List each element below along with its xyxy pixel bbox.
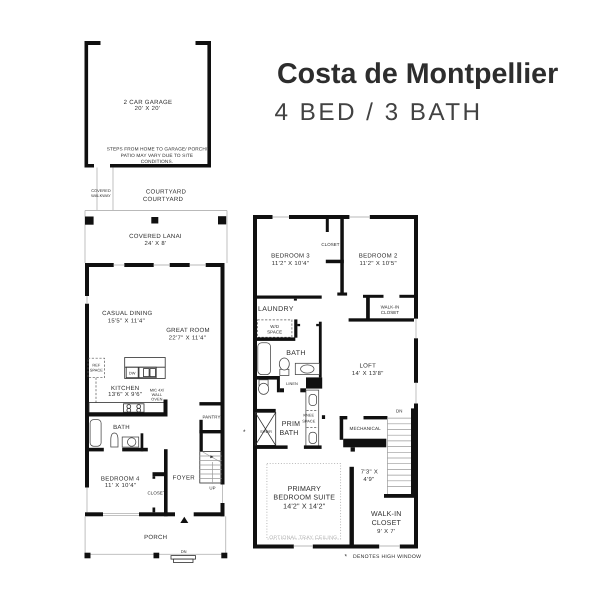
svg-text:SPACE: SPACE [90, 368, 104, 373]
svg-text:11'2" X 10'4": 11'2" X 10'4" [272, 260, 309, 267]
svg-text:BATH: BATH [113, 424, 130, 431]
svg-text:4'9": 4'9" [363, 476, 374, 483]
svg-text:SHWR: SHWR [260, 429, 272, 434]
svg-text:4 BED / 3 BATH: 4 BED / 3 BATH [275, 99, 483, 126]
svg-text:CLOSET: CLOSET [321, 242, 339, 247]
svg-text:DW: DW [129, 371, 136, 376]
svg-text:KITCHEN: KITCHEN [111, 385, 140, 392]
svg-text:WALK-IN: WALK-IN [381, 304, 400, 309]
svg-text:COURTYARD: COURTYARD [146, 189, 187, 196]
svg-text:LAUNDRY: LAUNDRY [258, 306, 294, 313]
svg-text:PORCH: PORCH [144, 534, 167, 541]
svg-text:24' X 8': 24' X 8' [144, 240, 166, 247]
svg-text:DN: DN [396, 408, 403, 413]
svg-text:14'2" X 14'2": 14'2" X 14'2" [283, 504, 326, 511]
svg-text:22'7" X 11'4": 22'7" X 11'4" [169, 335, 206, 342]
svg-text:DENOTES HIGH WINDOW: DENOTES HIGH WINDOW [353, 554, 421, 560]
svg-text:WALKWAY: WALKWAY [91, 193, 111, 198]
svg-text:CASUAL DINING: CASUAL DINING [102, 310, 152, 317]
svg-text:COVERED LANAI: COVERED LANAI [129, 233, 182, 240]
svg-text:LINEN: LINEN [286, 381, 298, 386]
svg-text:WALK-IN: WALK-IN [371, 511, 402, 518]
svg-text:11'2" X 10'5": 11'2" X 10'5" [359, 260, 396, 267]
svg-text:PRIM: PRIM [282, 421, 300, 428]
svg-text:BEDROOM 4: BEDROOM 4 [101, 476, 140, 483]
svg-text:DN: DN [181, 549, 187, 554]
svg-text:Costa de Montpellier: Costa de Montpellier [277, 58, 558, 90]
svg-text:GREAT ROOM: GREAT ROOM [166, 327, 210, 334]
svg-text:CLOSET: CLOSET [372, 520, 402, 527]
svg-text:W/D: W/D [270, 324, 279, 329]
svg-text:PRIMARY: PRIMARY [288, 486, 321, 493]
svg-text:7'3" X: 7'3" X [361, 469, 378, 476]
svg-text:BEDROOM 3: BEDROOM 3 [271, 252, 310, 259]
svg-text:LOFT: LOFT [360, 363, 377, 370]
svg-text:11' X 10'4": 11' X 10'4" [105, 482, 136, 489]
svg-text:UP: UP [209, 486, 215, 491]
svg-text:20' X 20': 20' X 20' [135, 105, 161, 112]
svg-text:BATH: BATH [279, 430, 298, 437]
svg-text:13'6" X 9'6": 13'6" X 9'6" [108, 391, 142, 398]
svg-text:BEDROOM 2: BEDROOM 2 [359, 252, 398, 259]
svg-text:FOYER: FOYER [173, 475, 196, 482]
svg-text:SPACE: SPACE [267, 330, 282, 335]
svg-text:OPTIONAL TRAY CEILING: OPTIONAL TRAY CEILING [269, 535, 337, 541]
svg-text:KNEE: KNEE [303, 413, 314, 418]
svg-text:CLOSET: CLOSET [381, 310, 399, 315]
svg-text:STEPS FROM HOME TO GARAGE/ POR: STEPS FROM HOME TO GARAGE/ PORCH/ [107, 147, 208, 152]
svg-text:2 CAR GARAGE: 2 CAR GARAGE [124, 99, 173, 106]
svg-text:15'5" X 11'4": 15'5" X 11'4" [108, 318, 145, 325]
svg-text:BEDROOM SUITE: BEDROOM SUITE [273, 495, 335, 502]
svg-text:CLOSET: CLOSET [148, 490, 166, 495]
svg-text:OVEN: OVEN [151, 397, 162, 402]
svg-text:SPACE: SPACE [302, 419, 316, 424]
svg-text:9' X 7': 9' X 7' [377, 528, 395, 535]
svg-text:PANTRY: PANTRY [202, 414, 220, 419]
svg-text:PATIO MAY VARY DUE TO SITE: PATIO MAY VARY DUE TO SITE [121, 153, 193, 158]
svg-text:CONDITIONS.: CONDITIONS. [141, 159, 173, 164]
svg-text:MECHANICAL: MECHANICAL [350, 426, 382, 431]
svg-text:COURTYARD: COURTYARD [143, 196, 184, 203]
svg-text:BATH: BATH [286, 350, 306, 357]
svg-text:14' X 13'8": 14' X 13'8" [352, 370, 384, 377]
